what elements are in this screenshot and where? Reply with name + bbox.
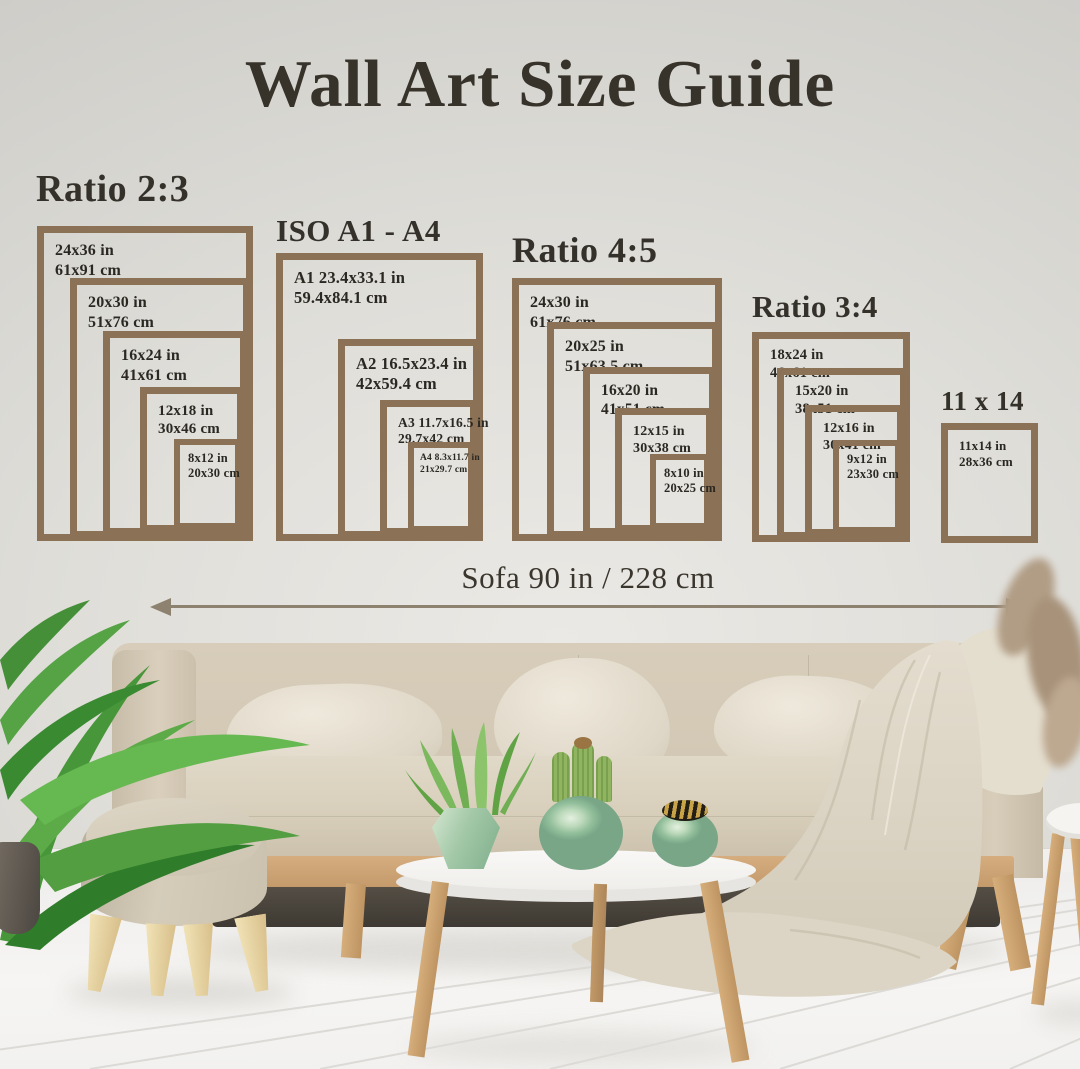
size-label: 20x30 in51x76 cm: [77, 285, 243, 332]
size-label: 16x24 in41x61 cm: [110, 338, 240, 385]
size-label: 8x12 in20x30 cm: [180, 445, 235, 482]
cactus: [572, 742, 594, 804]
size-label: A1 23.4x33.1 in59.4x84.1 cm: [283, 260, 476, 308]
group-title-ratio-3-4: Ratio 3:4: [752, 289, 878, 325]
size-label: A4 8.3x11.7 in21x29.7 cm: [414, 448, 468, 476]
cactus-bloom: [574, 737, 592, 749]
size-label: 24x36 in61x91 cm: [44, 233, 246, 280]
ottoman-top: [86, 798, 262, 876]
size-label: A2 16.5x23.4 in42x59.4 cm: [345, 346, 473, 394]
size-frame-a4: A4 8.3x11.7 in21x29.7 cm: [408, 442, 474, 532]
size-label: 9x12 in23x30 cm: [839, 446, 895, 483]
cactus: [552, 752, 570, 802]
page-title: Wall Art Size Guide: [0, 46, 1080, 123]
size-frame-11x14: 11x14 in28x36 cm: [941, 423, 1038, 543]
size-label: 12x15 in30x38 cm: [622, 415, 706, 457]
size-label: 11x14 in28x36 cm: [948, 430, 1031, 470]
size-label: 12x18 in30x46 cm: [147, 394, 237, 439]
group-title-11x14: 11 x 14: [941, 386, 1024, 417]
vase-cactus: [539, 796, 623, 870]
size-label: 8x10 in20x25 cm: [656, 460, 704, 497]
arrow-left-icon: [150, 598, 171, 616]
size-frame-9x12: 9x12 in23x30 cm: [833, 440, 901, 533]
striped-lid: [662, 800, 708, 821]
size-frame-8x12: 8x12 in20x30 cm: [174, 439, 241, 529]
group-title-iso-a1-a4: ISO A1 - A4: [276, 213, 441, 249]
table-floor-shadow: [408, 1032, 758, 1062]
wall-art-size-guide-poster: Wall Art Size Guide Ratio 2:3 ISO A1 - A…: [0, 0, 1080, 1069]
sofa-width-label: Sofa 90 in / 228 cm: [166, 560, 1010, 596]
size-frame-8x10: 8x10 in20x25 cm: [650, 454, 710, 529]
group-title-ratio-4-5: Ratio 4:5: [512, 229, 657, 271]
cactus: [596, 756, 612, 802]
plant-pot: [0, 842, 40, 934]
sofa-width-arrow: [168, 605, 1008, 608]
group-title-ratio-2-3: Ratio 2:3: [36, 167, 189, 211]
